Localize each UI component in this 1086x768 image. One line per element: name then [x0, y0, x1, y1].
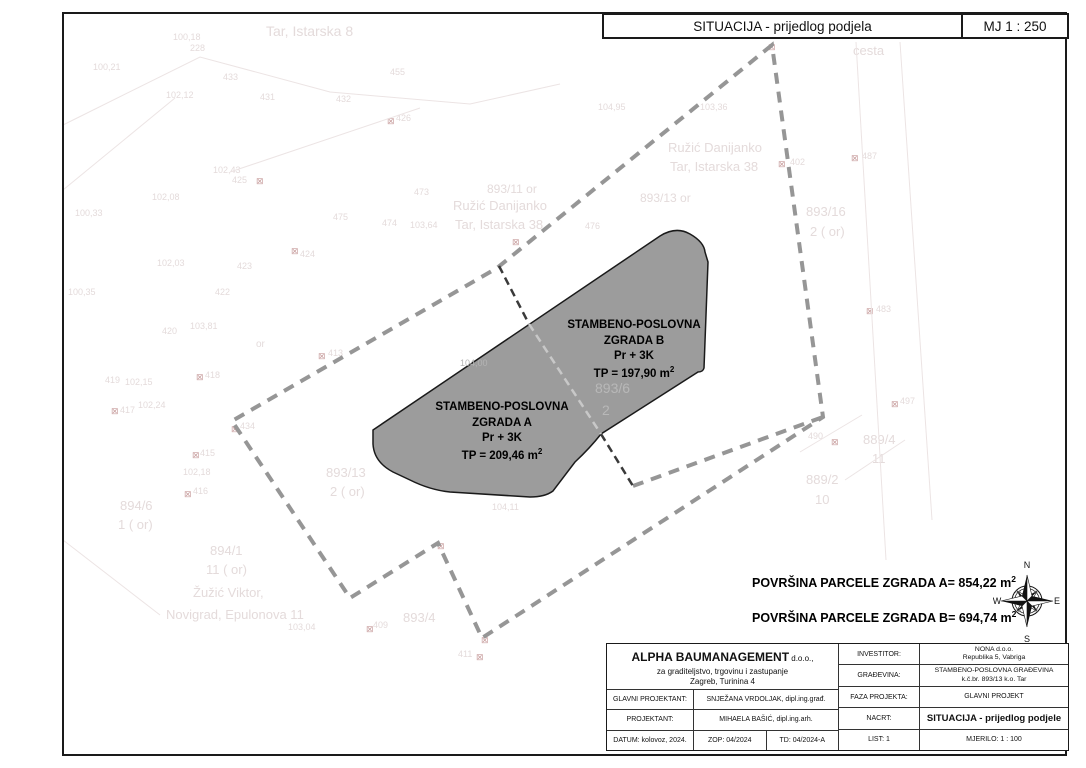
row-list-mjerilo: LIST: 1 MJERILO: 1 : 100 [839, 729, 1068, 750]
nacrt-value: SITUACIJA - prijedlog podjele [919, 708, 1068, 728]
parcel-area-summary: POVRŠINA PARCELE ZGRADA A= 854,22 m2 POV… [752, 574, 1016, 644]
projektant-label: PROJEKTANT: [607, 710, 693, 729]
company-activity: za graditeljstvo, trgovinu i zastupanje [657, 667, 788, 677]
svg-text:SW: SW [1015, 609, 1021, 613]
investitor-value: NONA d.o.o. Republika 5, Vabriga [919, 644, 1068, 664]
mjerilo-cell: MJERILO: 1 : 100 [919, 730, 1068, 750]
svg-text:NW: NW [1015, 590, 1022, 594]
compass-e: E [1054, 596, 1060, 606]
building-a-floors: Pr + 3K [413, 431, 591, 447]
drawing-title: SITUACIJA - prijedlog podjela [604, 15, 961, 37]
investitor-label: INVESTITOR: [839, 644, 919, 664]
compass-w: W [993, 596, 1002, 606]
company-header: ALPHA BAUMANAGEMENT d.o.o., za graditelj… [607, 644, 838, 689]
title-block: ALPHA BAUMANAGEMENT d.o.o., za graditelj… [606, 643, 1069, 751]
faza-value: GLAVNI PROJEKT [919, 687, 1068, 707]
row-projektant: PROJEKTANT: MIHAELA BAŠIĆ, dipl.ing.arh. [607, 709, 838, 729]
building-b-label: STAMBENO-POSLOVNA ZGRADA B Pr + 3K TP = … [545, 318, 723, 382]
projektant-value: MIHAELA BAŠIĆ, dipl.ing.arh. [693, 710, 838, 729]
row-glavni-projektant: GLAVNI PROJEKTANT: SNJEŽANA VRDOLJAK, di… [607, 689, 838, 709]
gradevina-label: GRAĐEVINA: [839, 665, 919, 685]
header-strip: SITUACIJA - prijedlog podjela MJ 1 : 250 [602, 13, 1069, 39]
building-a-area: TP = 209,46 m2 [413, 447, 591, 464]
cadastral-label: 893/6 [595, 381, 630, 395]
building-b-area: TP = 197,90 m2 [545, 365, 723, 382]
cadastral-label: 2 [602, 403, 610, 417]
svg-text:NE: NE [1034, 590, 1040, 594]
svg-text:SE: SE [1034, 609, 1039, 613]
parcel-area-a: POVRŠINA PARCELE ZGRADA A= 854,22 m2 [752, 574, 1016, 590]
building-b-name2: ZGRADA B [545, 334, 723, 350]
glavni-projektant-label: GLAVNI PROJEKTANT: [607, 690, 693, 709]
row-faza-projekta: FAZA PROJEKTA: GLAVNI PROJEKT [839, 686, 1068, 707]
nacrt-label: NACRT: [839, 708, 919, 728]
building-b-floors: Pr + 3K [545, 349, 723, 365]
building-b-name1: STAMBENO-POSLOVNA [545, 318, 723, 334]
title-block-left: ALPHA BAUMANAGEMENT d.o.o., za graditelj… [607, 644, 839, 750]
td-cell: TD: 04/2024-A [766, 731, 839, 750]
zop-cell: ZOP: 04/2024 [693, 731, 766, 750]
compass-main-star [1001, 575, 1053, 627]
compass-n: N [1024, 560, 1031, 570]
row-nacrt: NACRT: SITUACIJA - prijedlog podjele [839, 707, 1068, 728]
datum-cell: DATUM: kolovoz, 2024. [607, 731, 693, 750]
title-block-right: INVESTITOR: NONA d.o.o. Republika 5, Vab… [839, 644, 1068, 750]
row-datum: DATUM: kolovoz, 2024. ZOP: 04/2024 TD: 0… [607, 730, 838, 750]
cadastral-label: 104,00 [460, 359, 488, 368]
compass-rose-icon: N S W E NW NE SW SE [993, 558, 1061, 644]
row-gradevina: GRAĐEVINA: STAMBENO-POSLOVNA GRAĐEVINA k… [839, 664, 1068, 685]
row-investitor: INVESTITOR: NONA d.o.o. Republika 5, Vab… [839, 644, 1068, 664]
company-address: Zagreb, Turinina 4 [690, 677, 755, 687]
parcel-area-b: POVRŠINA PARCELE ZGRADA B= 694,74 m2 [752, 609, 1016, 625]
list-cell: LIST: 1 [839, 730, 919, 750]
drawing-sheet: Tar, Istarska 8100,18228100,21433455102,… [0, 0, 1086, 768]
glavni-projektant-value: SNJEŽANA VRDOLJAK, dipl.ing.građ. [693, 690, 838, 709]
building-a-name1: STAMBENO-POSLOVNA [413, 400, 591, 416]
gradevina-value: STAMBENO-POSLOVNA GRAĐEVINA k.č.br. 893/… [919, 665, 1068, 685]
faza-label: FAZA PROJEKTA: [839, 687, 919, 707]
building-a-name2: ZGRADA A [413, 416, 591, 432]
building-a-label: STAMBENO-POSLOVNA ZGRADA A Pr + 3K TP = … [413, 400, 591, 464]
drawing-scale: MJ 1 : 250 [961, 15, 1067, 37]
company-name-line: ALPHA BAUMANAGEMENT d.o.o., [631, 647, 813, 667]
